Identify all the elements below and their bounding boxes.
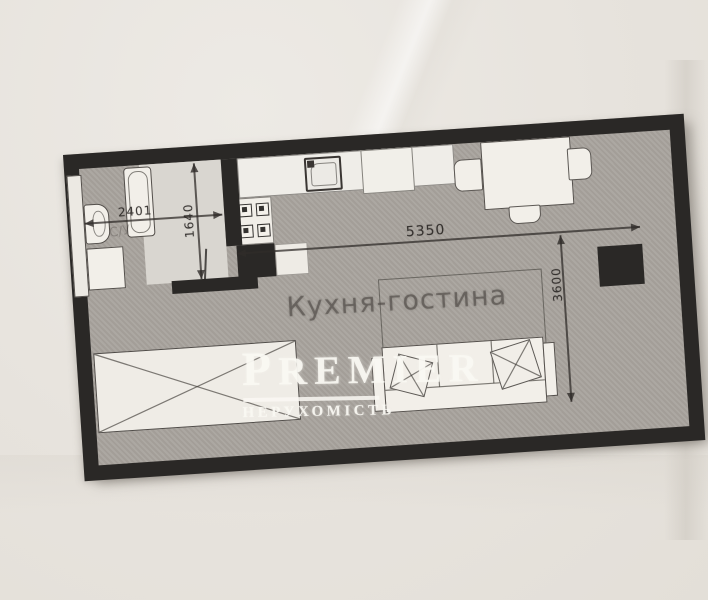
sofa-armrest xyxy=(542,342,558,397)
dimension-line-living-depth xyxy=(559,235,572,402)
chair-icon xyxy=(567,147,593,181)
kitchen-cabinet xyxy=(274,242,309,276)
floor-plan-photo: 2401 1640 5350 3600 Кухня-гостина С/У PR… xyxy=(0,0,708,600)
agency-watermark: PREMIER НЕРУХОМІСТЬ xyxy=(241,342,485,422)
room-label-bathroom: С/У xyxy=(108,223,131,241)
burner-icon xyxy=(256,202,270,216)
watermark-brand: PREMIER xyxy=(241,342,485,396)
apartment-floor-plan: 2401 1640 5350 3600 Кухня-гостина С/У xyxy=(63,114,705,482)
chair-icon xyxy=(453,158,483,192)
burner-icon xyxy=(257,223,271,237)
sink-icon xyxy=(304,156,343,192)
dimension-value-living-depth: 3600 xyxy=(549,267,565,302)
burner-icon xyxy=(240,225,254,239)
washing-machine-icon xyxy=(86,246,126,290)
kitchen-appliance xyxy=(360,147,415,194)
dining-table xyxy=(480,136,574,210)
dimension-value-living-width: 5350 xyxy=(405,222,446,241)
dimension-value-bathroom-depth: 1640 xyxy=(181,203,197,238)
shaft-column xyxy=(597,244,645,287)
chair-icon xyxy=(508,204,541,224)
dimension-value-bathroom-width: 2401 xyxy=(117,203,152,219)
burner-icon xyxy=(239,204,253,218)
watermark-divider xyxy=(243,396,379,402)
kitchen-counter xyxy=(237,144,456,198)
